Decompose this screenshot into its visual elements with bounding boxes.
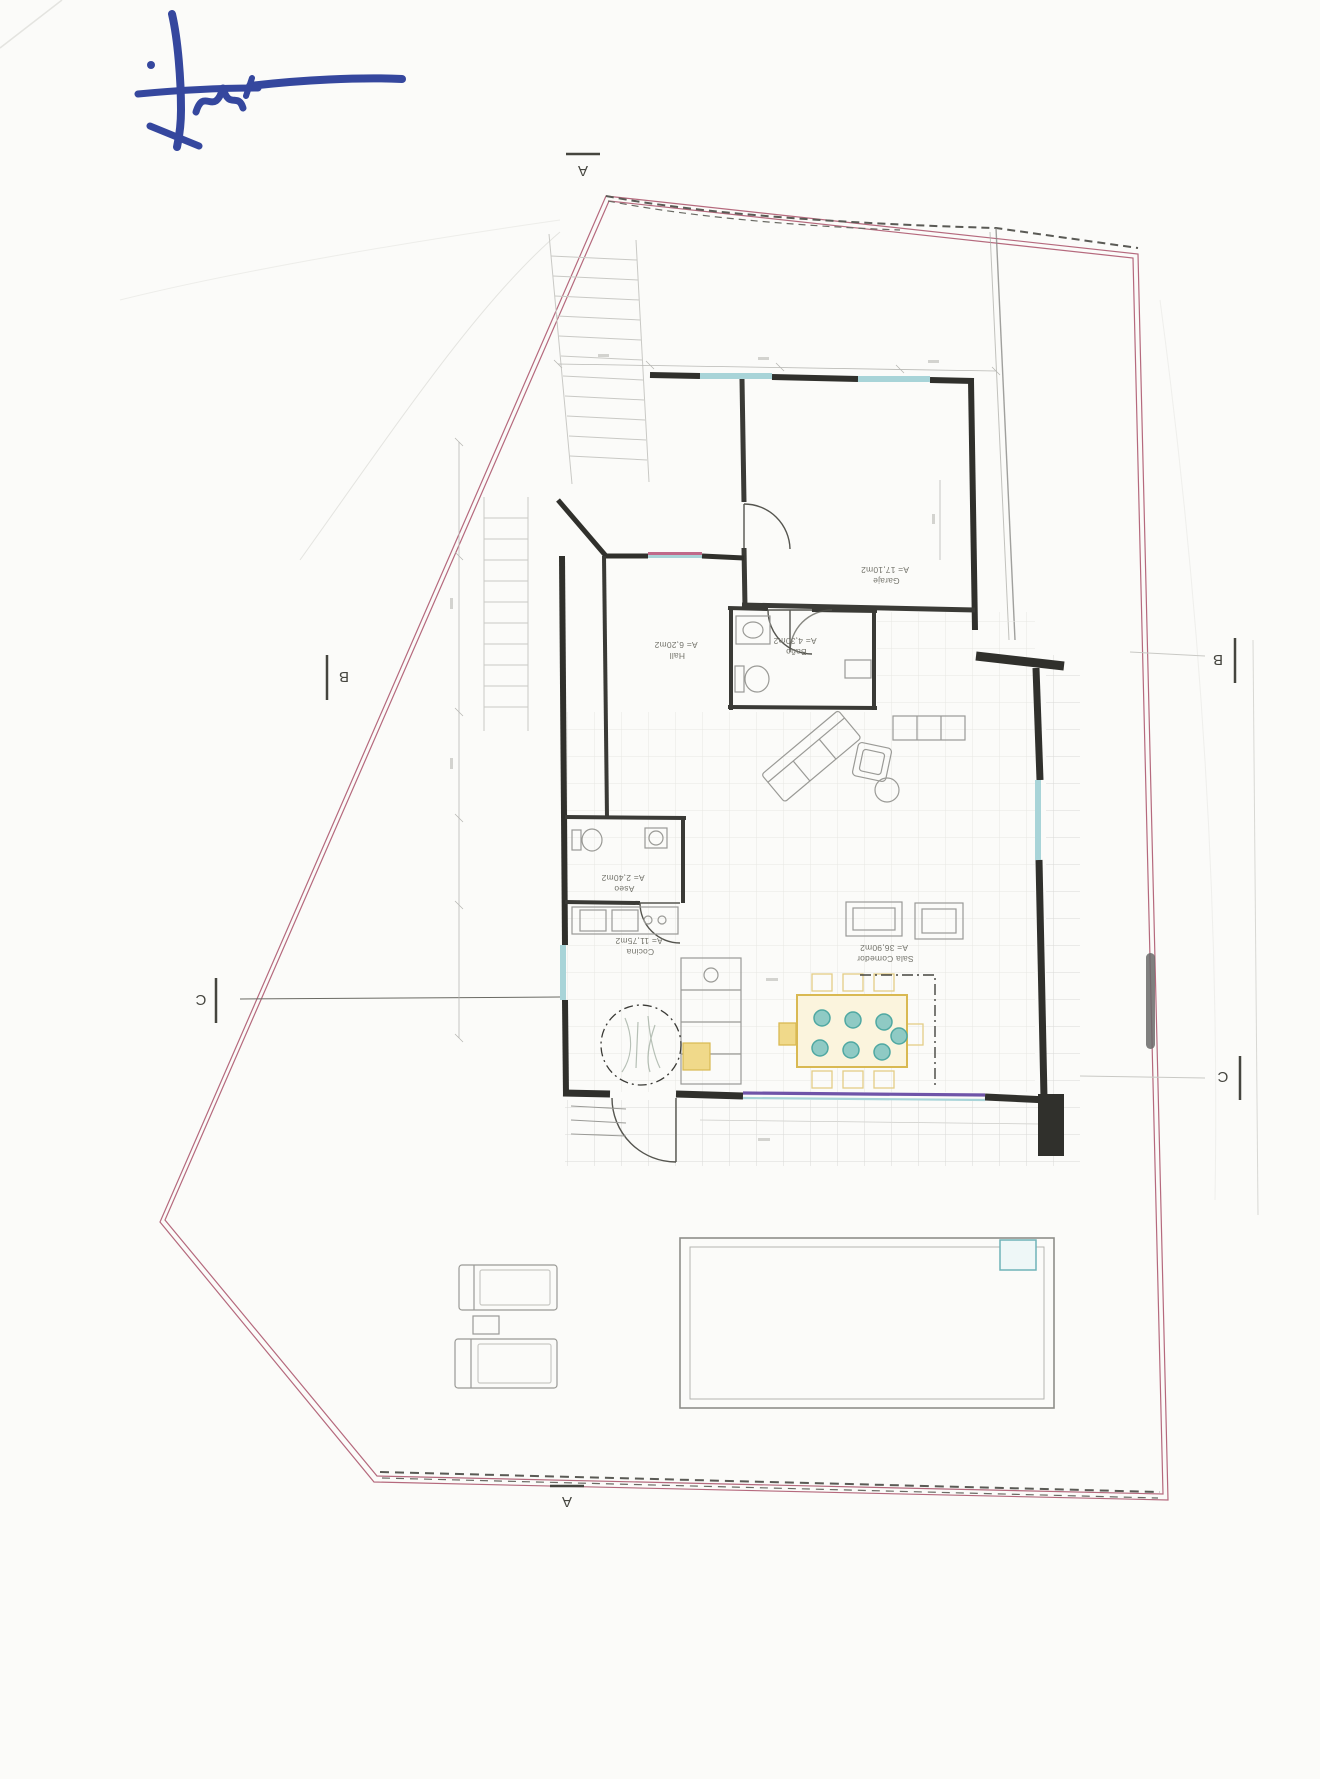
garage-window-2 <box>858 376 930 382</box>
section-letter-b-left: B <box>339 668 349 685</box>
scanned-floor-plan-page: A A B B C C <box>0 0 1320 1779</box>
room-label-sala-comedor: Sala Comedor A= 36,90m2 <box>854 943 913 964</box>
entry-door-sill <box>648 552 702 555</box>
living-window-east <box>1035 780 1041 860</box>
kitchen-window-west <box>560 945 566 1000</box>
living-window-band-purple <box>743 1093 985 1095</box>
section-letter-a-bottom: A <box>562 1493 572 1510</box>
pool-steps <box>1000 1240 1036 1270</box>
terrace-south-tiles <box>565 1100 1080 1166</box>
scrollbar-thumb[interactable] <box>1146 953 1155 1049</box>
section-letter-c-left: C <box>195 991 206 1008</box>
terrace-pillar <box>1038 1094 1064 1156</box>
section-letter-b-right: B <box>1213 651 1223 668</box>
section-letter-c-right: C <box>1217 1068 1228 1085</box>
garage-window-1 <box>700 373 772 379</box>
terrace-east-tiles <box>1046 655 1080 1165</box>
floor-plan-canvas: A A B B C C <box>0 0 1320 1779</box>
kitchen-yellow-cabinet <box>683 1043 710 1070</box>
dining-chair-yellow-end <box>779 1023 796 1045</box>
section-letter-a-top: A <box>578 162 588 179</box>
